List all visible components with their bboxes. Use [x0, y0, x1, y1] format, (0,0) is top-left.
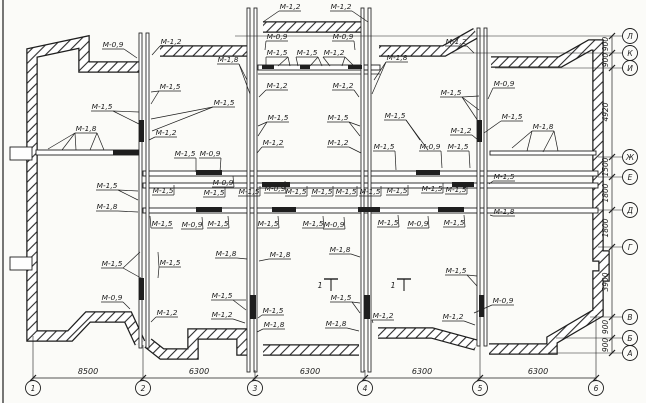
dimension-text-vertical: 3900	[601, 272, 610, 291]
mortar-mark-label: М-1,5	[312, 187, 333, 196]
mortar-mark-label: М-1,2	[157, 308, 178, 317]
lintel-segment	[139, 120, 144, 142]
mortar-mark-label: М-1,5	[303, 219, 324, 228]
dimension-text-vertical: 4920	[601, 102, 610, 121]
mortar-mark-label: М-1,5	[385, 111, 406, 120]
mortar-mark-label: М-1,5	[336, 187, 357, 196]
mortar-mark-label: М-1,5	[152, 219, 173, 228]
mortar-mark-label: М-1,5	[92, 102, 113, 111]
mortar-mark-label: М-1,8	[533, 122, 554, 131]
section-mark-number: 1	[390, 281, 395, 290]
mortar-mark-label: М-1,5	[267, 48, 288, 57]
mortar-mark-label: М-1,5	[263, 306, 284, 315]
dimension-text-vertical: 900	[601, 37, 610, 52]
axis-number: 6	[594, 384, 599, 393]
mortar-mark-label: М-1,5	[422, 184, 443, 193]
mortar-mark-label: М-1,5	[204, 188, 225, 197]
mortar-mark-label: М-1,5	[208, 219, 229, 228]
mortar-mark-label: М-0,9	[102, 293, 123, 302]
lintel-segment	[196, 170, 222, 175]
axis-letter: А	[626, 349, 632, 358]
mortar-mark-label: М-1,5	[153, 186, 174, 195]
mortar-mark-label: М-1,5	[160, 258, 181, 267]
mortar-mark-label: М-1,5	[328, 113, 349, 122]
mortar-mark-label: М-1,8	[494, 207, 515, 216]
mortar-mark-label: М-1,2	[331, 2, 352, 11]
mortar-mark-label: М-1,5	[331, 293, 352, 302]
mortar-mark-label: М-0,9	[213, 178, 234, 187]
mortar-mark-label: М-1,5	[448, 142, 469, 151]
mortar-mark-label: М-1,2	[263, 138, 284, 147]
mortar-mark-label: М-1,5	[446, 266, 467, 275]
mortar-mark-label: М-0,9	[333, 32, 354, 41]
shaft-wall	[139, 33, 142, 348]
mortar-mark-label: М-1,5	[374, 142, 395, 151]
mortar-mark-label: М-1,8	[330, 245, 351, 254]
mortar-mark-label: М-1,5	[360, 187, 381, 196]
lintel-segment	[262, 65, 274, 69]
axis-number: 1	[31, 384, 36, 393]
dimension-text-vertical: 1800	[601, 183, 610, 202]
mortar-mark-label: М-0,9	[494, 79, 515, 88]
mortar-mark-label: М-1,5	[160, 82, 181, 91]
mortar-mark-label: М-1,2	[373, 311, 394, 320]
mortar-mark-label: М-1,5	[268, 113, 289, 122]
mortar-mark-label: М-0,9	[420, 142, 441, 151]
mortar-mark-label: М-1,2	[333, 81, 354, 90]
mortar-mark-label: М-1,2	[446, 37, 467, 46]
dimension-text-vertical: 900	[601, 53, 610, 68]
lintel-segment	[358, 207, 380, 212]
floor-plan-drawing: М-1,2М-1,2М-0,9М-1,2М-0,9М-0,9М-1,2М-1,8…	[0, 0, 646, 403]
section-mark-number: 1	[317, 281, 322, 290]
mortar-mark-label: М-1,5	[239, 187, 260, 196]
mortar-mark-label: М-0,9	[324, 220, 345, 229]
mortar-mark-label: М-1,5	[446, 185, 467, 194]
mortar-mark-label: М-1,8	[326, 319, 347, 328]
axis-letter: Е	[628, 173, 633, 182]
mortar-mark-label: М-1,5	[387, 186, 408, 195]
mortar-mark-label: М-1,5	[444, 218, 465, 227]
axis-number: 4	[363, 384, 368, 393]
shaft-wall	[484, 28, 487, 346]
lintel-segment	[113, 150, 139, 155]
axis-letter: К	[627, 49, 633, 58]
dimension-text-vertical: 1800	[601, 218, 610, 237]
dimension-text: 6300	[412, 367, 432, 376]
axis-number: 2	[141, 384, 146, 393]
mortar-mark-label: М-1,2	[280, 2, 301, 11]
mortar-mark-label: М-0,9	[182, 220, 203, 229]
mortar-mark-label: М-0,9	[103, 40, 124, 49]
dimension-text-vertical: 900	[601, 320, 610, 335]
lintel-segment	[364, 295, 370, 319]
mortar-mark-label: М-0,9	[200, 149, 221, 158]
mortar-mark-label: М-1,5	[286, 187, 307, 196]
dimension-text: 6300	[189, 367, 209, 376]
dimension-text: 8500	[78, 367, 98, 376]
mortar-mark-label: М-1,8	[97, 202, 118, 211]
lintel-segment	[300, 65, 310, 69]
mortar-mark-label: М-1,5	[102, 259, 123, 268]
mortar-mark-label: М-1,8	[216, 249, 237, 258]
mortar-mark-label: М-1,8	[270, 250, 291, 259]
axis-number: 3	[253, 384, 258, 393]
left-wall-tab	[10, 257, 32, 270]
mortar-mark-label: М-1,2	[161, 37, 182, 46]
lintel-segment	[438, 207, 464, 212]
mortar-mark-label: М-1,5	[494, 172, 515, 181]
mortar-mark-label: М-1,2	[451, 126, 472, 135]
mortar-mark-label: М-1,8	[387, 53, 408, 62]
mortar-mark-label: М-0,9	[408, 219, 429, 228]
mortar-mark-label: М-1,2	[328, 138, 349, 147]
axis-letter: Б	[627, 334, 632, 343]
shaft-wall	[146, 33, 149, 348]
axis-letter: Д	[626, 206, 633, 215]
lintel-segment	[416, 170, 440, 175]
mortar-mark-label: М-1,5	[214, 98, 235, 107]
mortar-mark-label: М-1,5	[258, 219, 279, 228]
left-wall-tab	[10, 147, 32, 160]
axis-letter: В	[627, 313, 632, 322]
axis-letter: И	[627, 64, 633, 73]
mortar-mark-label: М-1,5	[175, 149, 196, 158]
axis-letter: Л	[626, 32, 633, 41]
dimension-text: 6300	[300, 367, 320, 376]
mortar-mark-label: М-1,5	[502, 112, 523, 121]
mortar-mark-label: М-1,8	[264, 320, 285, 329]
mortar-mark-label: М-0,9	[267, 32, 288, 41]
axis-letter: Ж	[625, 153, 635, 162]
lintel-segment	[272, 207, 296, 212]
lintel-segment	[250, 295, 256, 319]
axis-number: 5	[478, 384, 483, 393]
lintel-segment	[139, 278, 144, 300]
mortar-mark-label: М-1,5	[297, 48, 318, 57]
mortar-mark-label: М-1,2	[324, 48, 345, 57]
lintel-segment	[348, 65, 362, 69]
mortar-mark-label: М-1,5	[378, 218, 399, 227]
mortar-mark-label: М-0,9	[265, 184, 286, 193]
dimension-text: 6300	[528, 367, 548, 376]
mortar-mark-label: М-1,5	[441, 88, 462, 97]
mortar-mark-label: М-0,9	[493, 296, 514, 305]
mortar-mark-label: М-1,5	[97, 181, 118, 190]
mortar-mark-label: М-1,2	[267, 81, 288, 90]
mortar-mark-label: М-1,5	[212, 291, 233, 300]
dimension-text-vertical: 900	[601, 338, 610, 353]
lintel-segment	[196, 207, 222, 212]
mortar-mark-label: М-1,8	[76, 124, 97, 133]
mortar-mark-label: М-1,2	[156, 128, 177, 137]
dimension-text-vertical: 1500	[601, 157, 610, 176]
mortar-mark-label: М-1,2	[212, 310, 233, 319]
mortar-mark-label: М-1,2	[443, 312, 464, 321]
lintel-segment	[479, 295, 484, 317]
mortar-mark-label: М-1,8	[218, 55, 239, 64]
